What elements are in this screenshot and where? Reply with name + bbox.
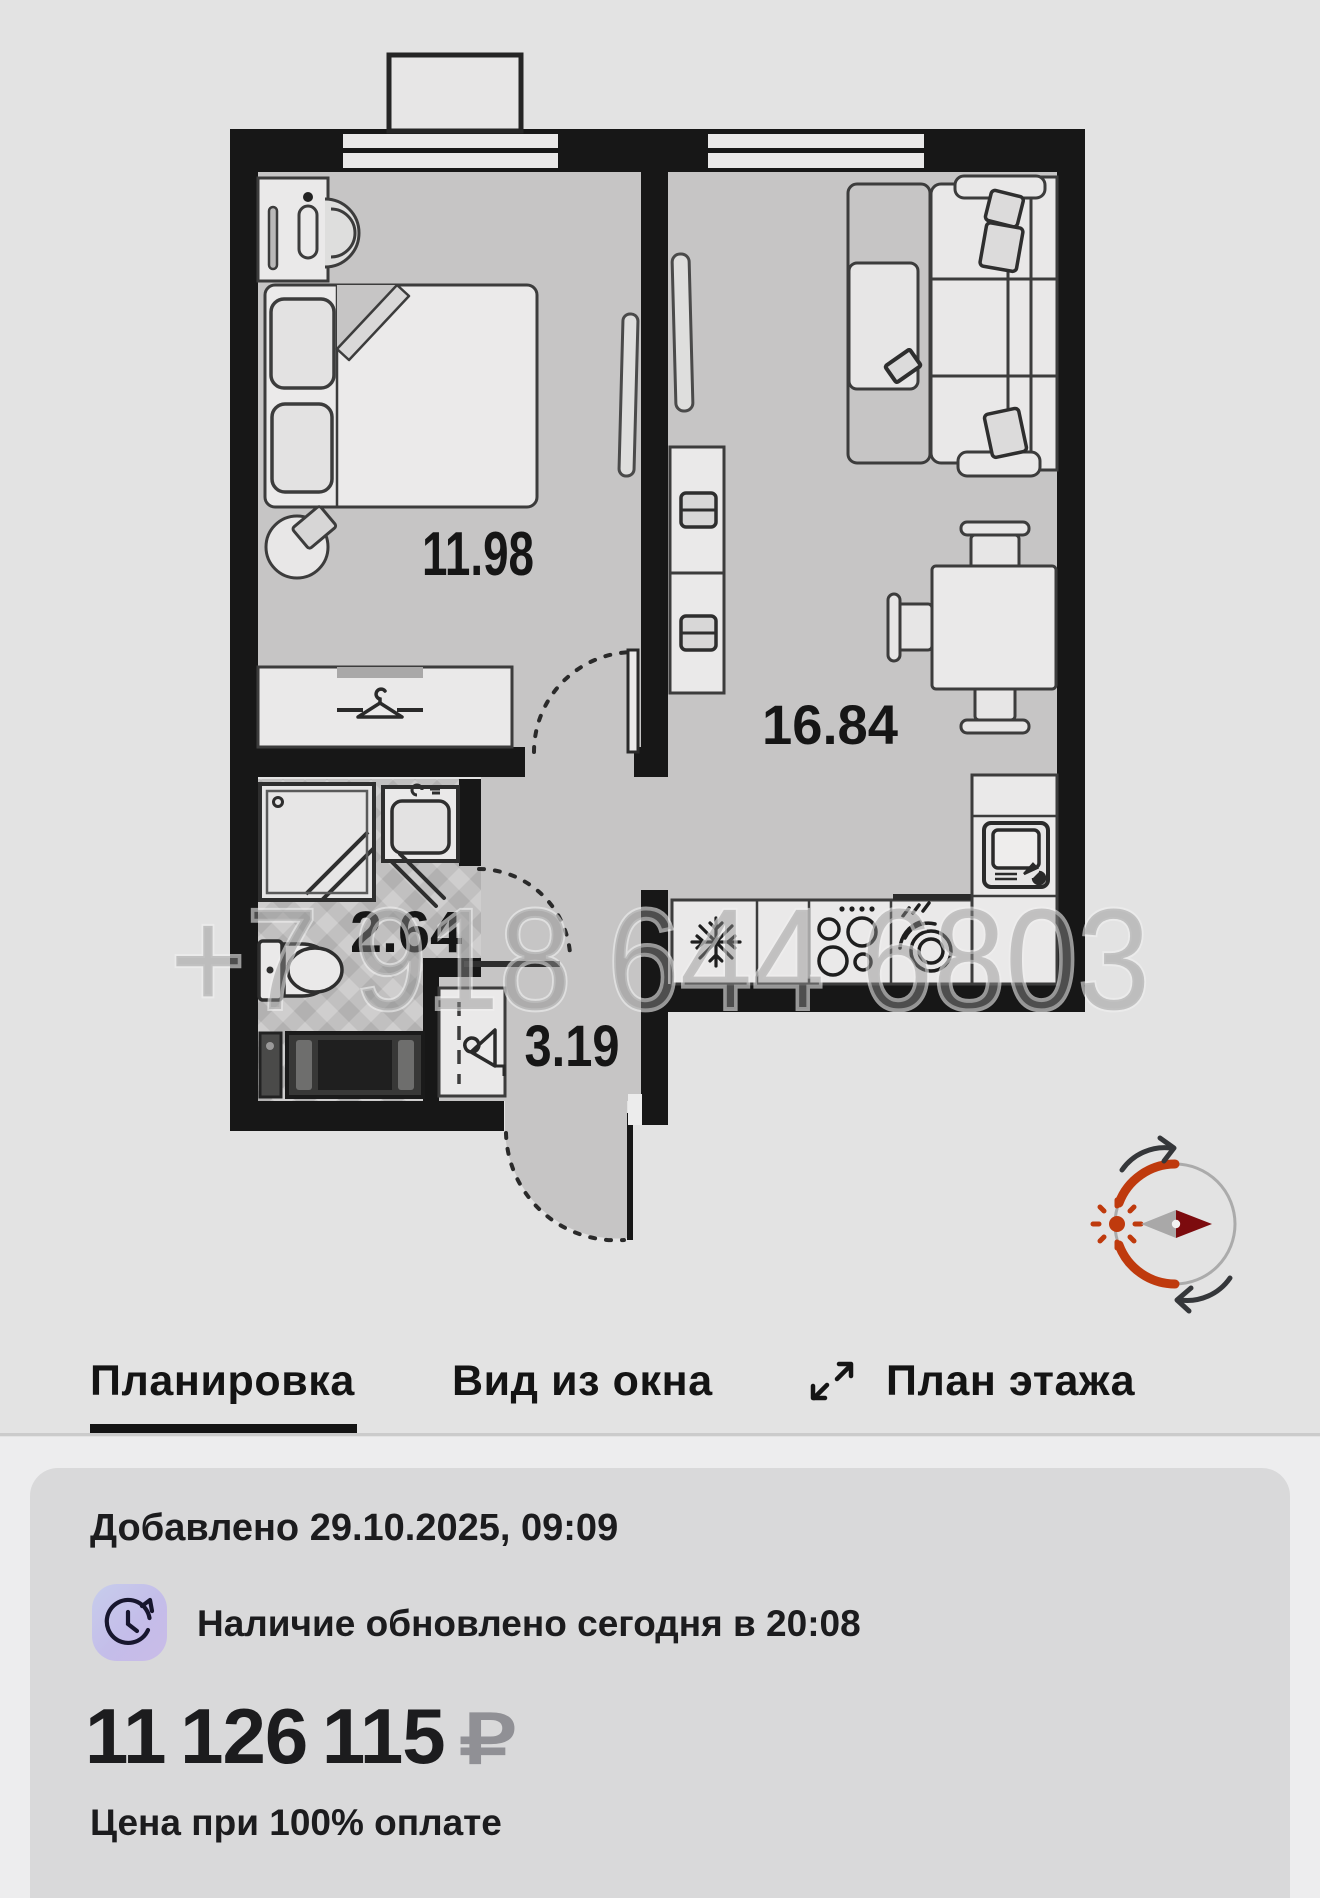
svg-text:16.84: 16.84: [762, 693, 898, 756]
svg-text:+7 918 644 6803: +7 918 644 6803: [170, 879, 1150, 1040]
svg-text:11.98: 11.98: [422, 520, 534, 589]
